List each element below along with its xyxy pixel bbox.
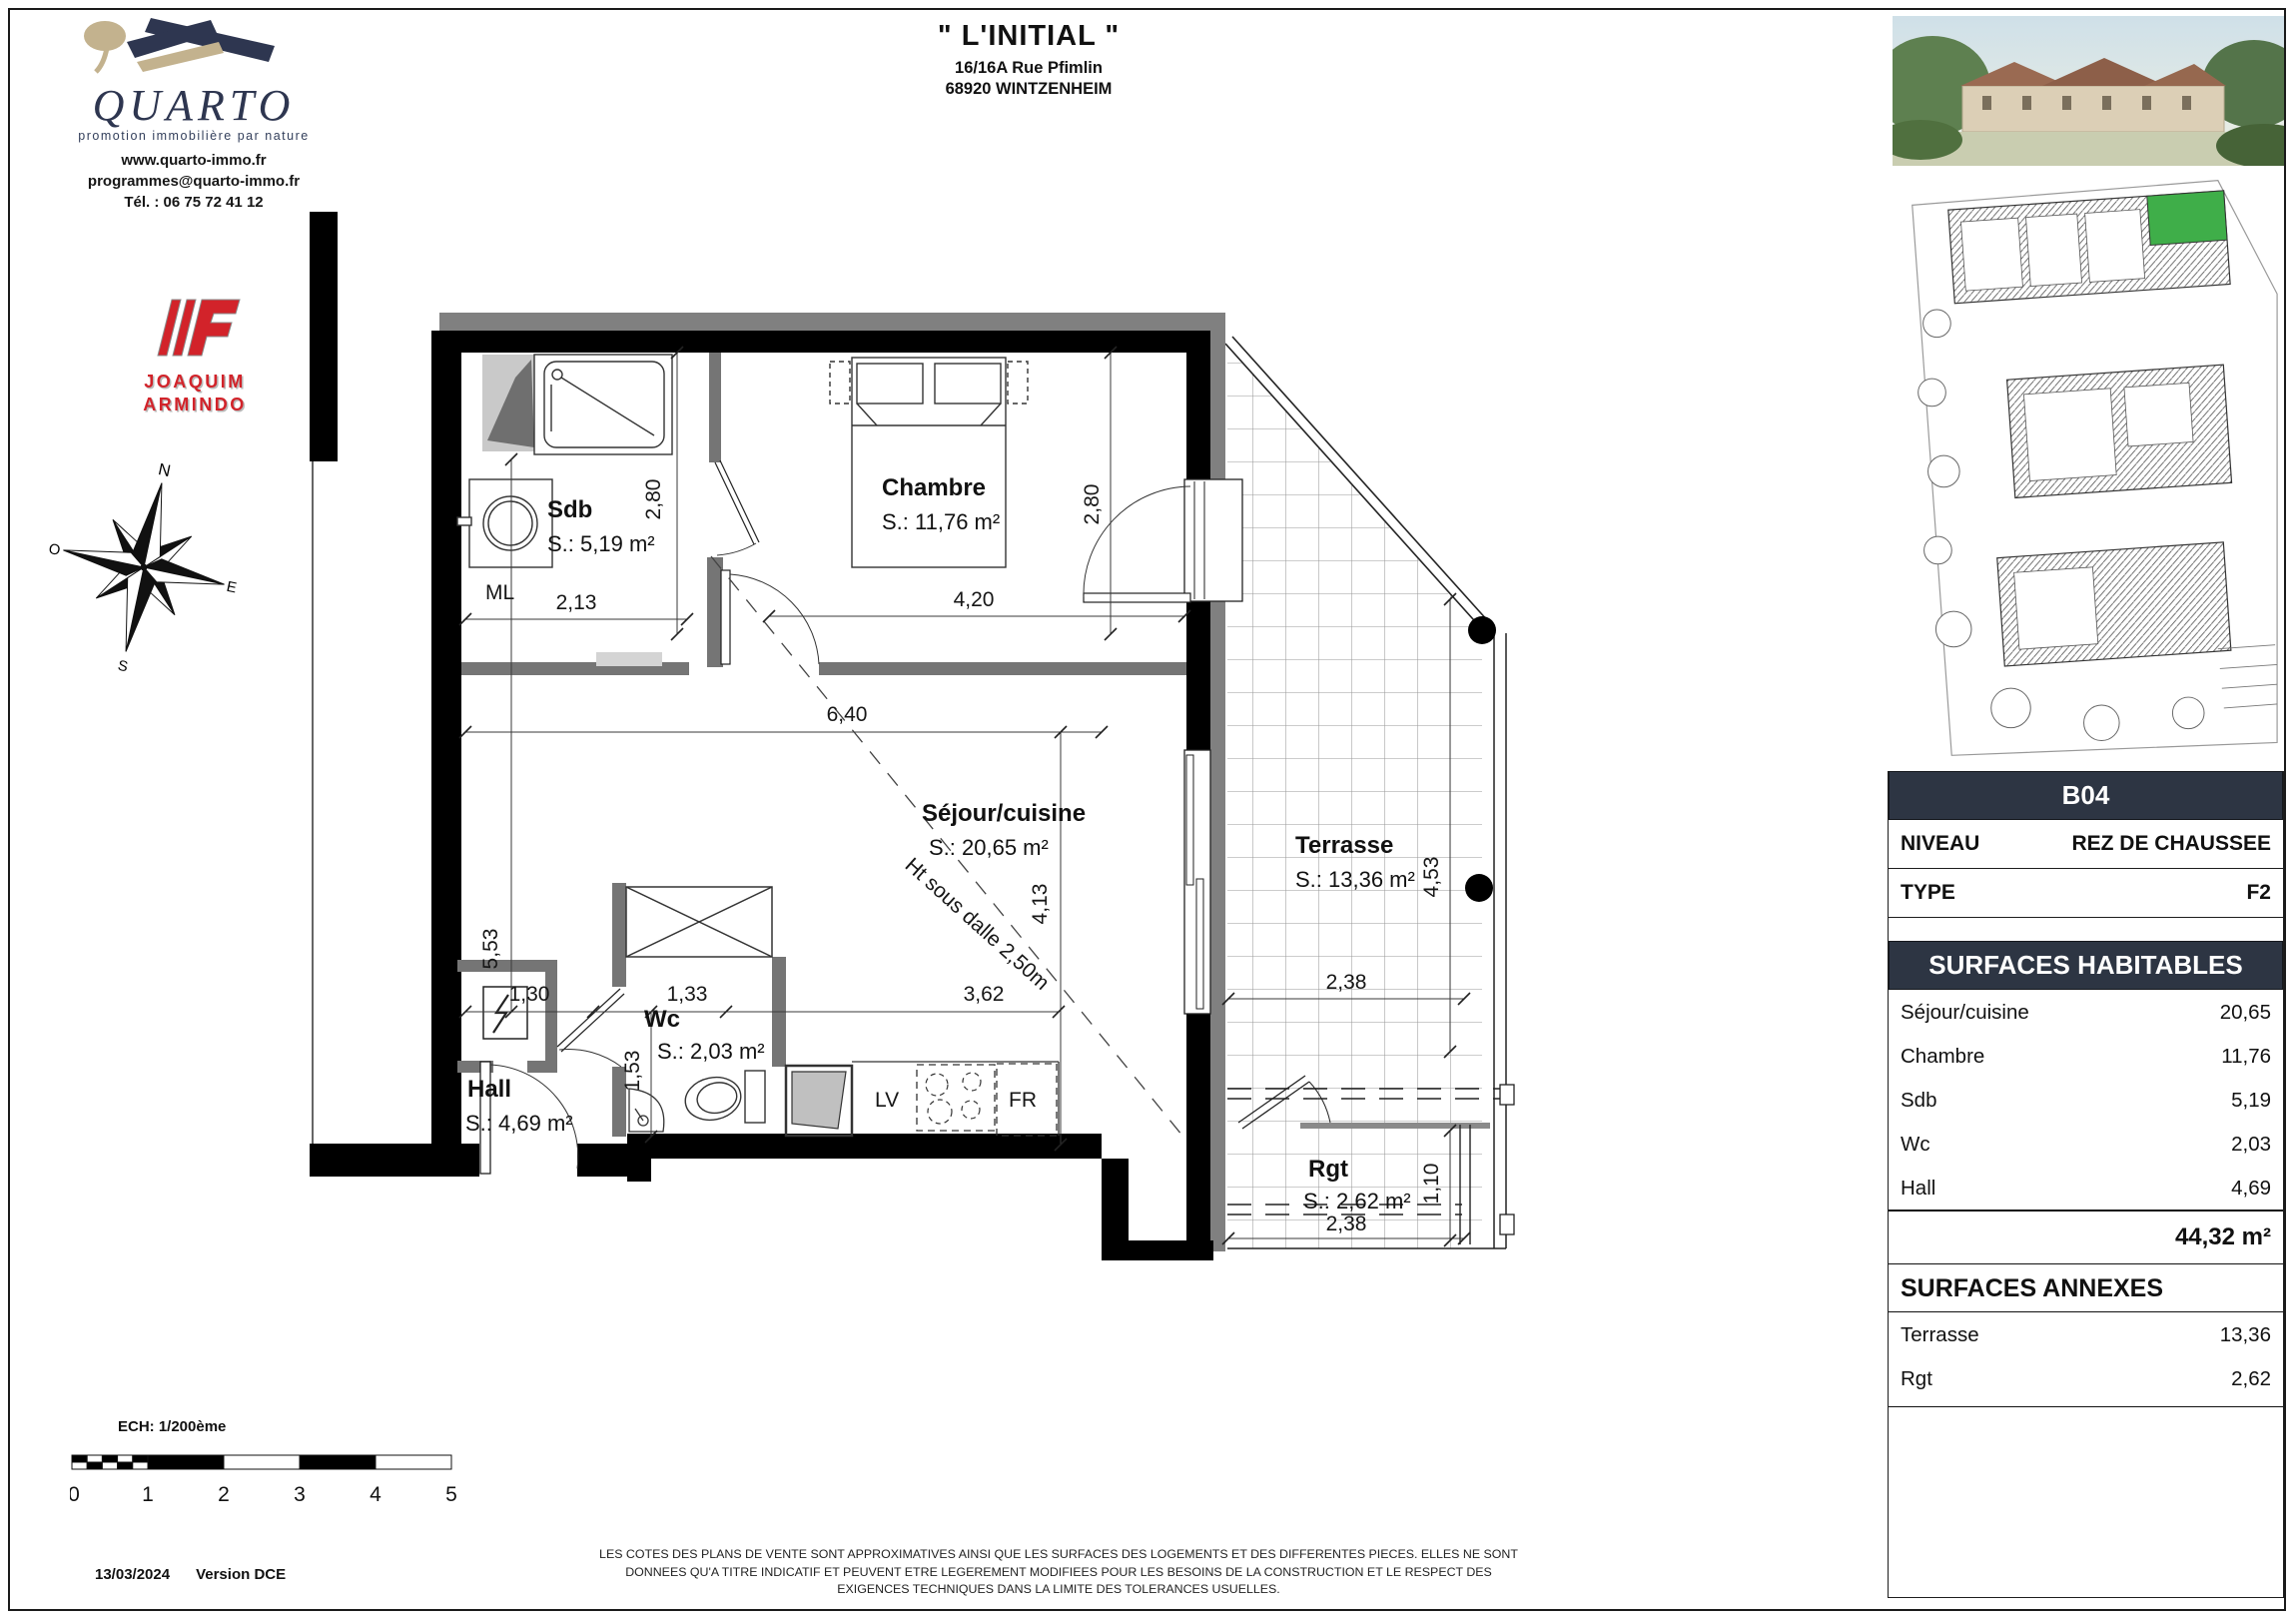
svg-text:4,53: 4,53 (1420, 857, 1443, 898)
surfaces-habitables-table: Séjour/cuisine20,65 Chambre11,76 Sdb5,19… (1889, 990, 2283, 1210)
toilet (681, 1071, 765, 1125)
project-address-2: 68920 WINTZENHEIM (699, 79, 1358, 100)
footer-date-version: 13/03/2024Version DCE (95, 1566, 312, 1583)
scale-tick-1: 1 (142, 1483, 154, 1506)
quarto-logo-mark (79, 16, 309, 78)
compass-east-label: E (225, 579, 238, 597)
svg-text:S.: 2,03 m²: S.: 2,03 m² (657, 1039, 765, 1064)
armindo-logo-block: JOAQUIM ARMINDO (78, 292, 312, 416)
svg-text:3,62: 3,62 (964, 983, 1005, 1006)
svg-text:5,53: 5,53 (479, 929, 502, 970)
washing-machine-label: ML (485, 581, 514, 604)
room-label-chambre: Chambre (882, 474, 986, 501)
partner-name-1: JOAQUIM (78, 371, 312, 394)
svg-text:S.: 20,65 m²: S.: 20,65 m² (929, 835, 1049, 860)
shower (482, 355, 672, 454)
svg-text:S.: 11,76 m²: S.: 11,76 m² (882, 509, 1000, 534)
scale-tick-2: 2 (218, 1483, 230, 1506)
brand-phone: Tél. : 06 75 72 41 12 (46, 192, 342, 213)
compass-west-label: O (47, 541, 62, 559)
quarto-logo-block: QUARTO promotion immobilière par nature … (46, 16, 342, 213)
table-row: Sdb5,19 (1889, 1078, 2283, 1122)
compass-rose: N E S O (46, 457, 242, 677)
disclaimer-line-1: LES COTES DES PLANS DE VENTE SONT APPROX… (509, 1546, 1608, 1564)
table-row: Séjour/cuisine20,65 (1889, 990, 2283, 1034)
scale-tick-4: 4 (370, 1483, 382, 1506)
unit-id-header: B04 (1889, 771, 2283, 820)
svg-text:6,40: 6,40 (827, 703, 868, 726)
fridge-label: FR (1009, 1089, 1037, 1112)
table-row: Wc2,03 (1889, 1122, 2283, 1166)
svg-text:2,13: 2,13 (556, 591, 597, 614)
wardrobe (626, 887, 772, 957)
terrasse-post (1465, 874, 1493, 902)
table-row: Terrasse13,36 (1889, 1312, 2283, 1356)
site-plan (1893, 172, 2284, 763)
svg-text:S.: 2,62 m²: S.: 2,62 m² (1303, 1189, 1411, 1214)
svg-text:1,53: 1,53 (621, 1051, 644, 1092)
project-title: " L'INITIAL " (699, 20, 1358, 53)
brand-email: programmes@quarto-immo.fr (46, 171, 342, 192)
table-row: Hall4,69 (1889, 1166, 2283, 1210)
dishwasher-label: LV (875, 1089, 899, 1112)
svg-text:2,80: 2,80 (1081, 484, 1104, 525)
plan-date: 13/03/2024 (95, 1566, 170, 1583)
partner-name-2: ARMINDO (78, 394, 312, 416)
stove (917, 1065, 995, 1131)
disclaimer: LES COTES DES PLANS DE VENTE SONT APPROX… (509, 1546, 1608, 1599)
room-label-rgt: Rgt (1308, 1156, 1348, 1183)
washing-machine (457, 479, 552, 567)
svg-text:S.: 4,69 m²: S.: 4,69 m² (465, 1111, 573, 1136)
surfaces-habitables-total: 44,32 m² (1889, 1210, 2283, 1264)
title-block: " L'INITIAL " 16/16A Rue Pfimlin 68920 W… (699, 20, 1358, 100)
svg-text:2,80: 2,80 (642, 479, 665, 520)
project-address-1: 16/16A Rue Pfimlin (699, 58, 1358, 79)
unit-info-panel: B04 NIVEAU REZ DE CHAUSSEE TYPE F2 SURFA… (1888, 771, 2284, 1598)
table-row: TYPE F2 (1889, 869, 2283, 918)
table-row: Chambre11,76 (1889, 1034, 2283, 1078)
room-label-wc: Wc (644, 1006, 680, 1033)
adjacent-wall-stub (310, 212, 338, 461)
room-label-sdb: Sdb (547, 496, 592, 523)
surfaces-habitables-header: SURFACES HABITABLES (1889, 941, 2283, 990)
compass-north-label: N (157, 459, 173, 480)
scale-tick-3: 3 (294, 1483, 306, 1506)
highlighted-unit (2147, 191, 2227, 246)
brand-name: QUARTO (46, 83, 342, 129)
table-row: NIVEAU REZ DE CHAUSSEE (1889, 820, 2283, 869)
scale-bar: 0 1 2 3 4 5 (70, 1453, 461, 1529)
wc-sink (629, 1089, 664, 1132)
room-label-hall: Hall (467, 1076, 511, 1103)
chambre-door (721, 570, 819, 664)
room-label-sejour: Séjour/cuisine (922, 800, 1086, 827)
room-label-terrasse: Terrasse (1295, 832, 1393, 859)
terrace-door (1084, 479, 1242, 602)
bed (830, 358, 1028, 567)
svg-text:4,20: 4,20 (954, 588, 995, 611)
svg-text:2,38: 2,38 (1326, 971, 1367, 994)
terrasse-post (1468, 616, 1496, 644)
svg-text:1,10: 1,10 (1420, 1164, 1443, 1205)
disclaimer-line-2: DONNEES QU'A TITRE INDICATIF ET PEUVENT … (509, 1564, 1608, 1582)
scale-label: ECH: 1/200ème (118, 1418, 226, 1435)
scale-tick-5: 5 (445, 1483, 457, 1506)
svg-text:1,33: 1,33 (667, 983, 708, 1006)
project-photo (1893, 16, 2284, 166)
sdb-door (715, 460, 759, 555)
plan-version: Version DCE (196, 1566, 286, 1583)
floor-plan: 2,13 2,80 4,20 2,80 6,40 5,53 1,30 1,33 … (300, 195, 1518, 1308)
svg-text:2,38: 2,38 (1326, 1213, 1367, 1235)
exterior-walls (310, 212, 1225, 1260)
table-row: Rgt2,62 (1889, 1356, 2283, 1400)
scale-tick-0: 0 (70, 1483, 80, 1506)
svg-text:S.: 13,36 m²: S.: 13,36 m² (1295, 867, 1415, 892)
surfaces-annexes-header: SURFACES ANNEXES (1889, 1264, 2283, 1312)
armindo-logo-icon (136, 292, 254, 366)
svg-text:4,13: 4,13 (1029, 884, 1052, 925)
compass-south-label: S (116, 658, 129, 676)
disclaimer-line-3: EXIGENCES TECHNIQUES DANS LA LIMITE DES … (509, 1581, 1608, 1599)
wc-door (557, 987, 626, 1067)
brand-tagline: promotion immobilière par nature (46, 129, 342, 143)
brand-website: www.quarto-immo.fr (46, 150, 342, 171)
interior-walls (457, 353, 1186, 1137)
surfaces-annexes-table: Terrasse13,36 Rgt2,62 (1889, 1312, 2283, 1407)
logo-tree-icon (84, 21, 126, 51)
svg-text:S.: 5,19 m²: S.: 5,19 m² (547, 531, 655, 556)
bay-window (1184, 750, 1210, 1014)
svg-text:1,30: 1,30 (509, 983, 550, 1006)
